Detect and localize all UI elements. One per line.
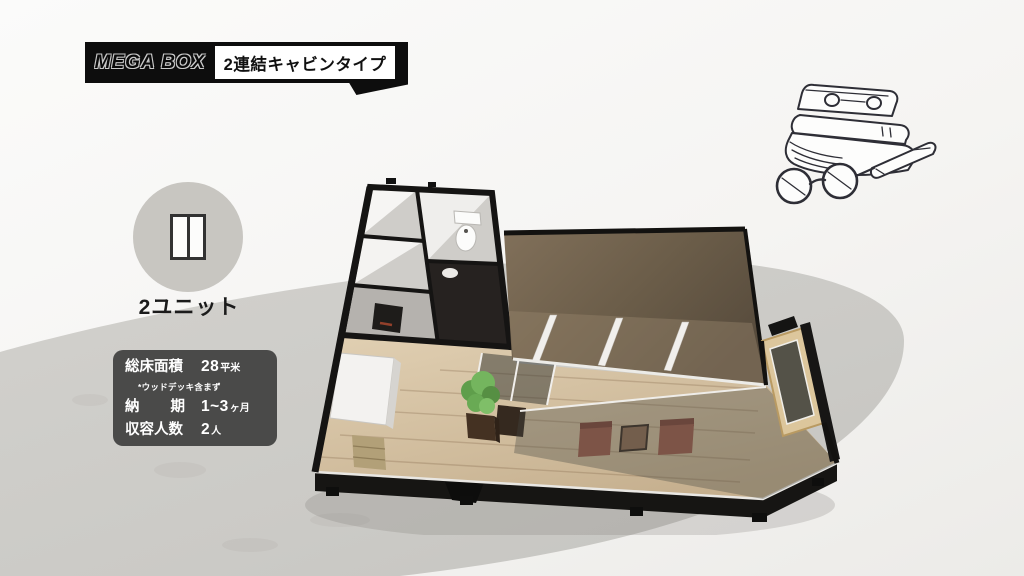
floor-area-unit: 平米 [220, 364, 240, 375]
title-ribbon: MEGA BOX 2連結キャビンタイプ [85, 42, 408, 83]
delivery-unit: ヶ月 [230, 404, 250, 415]
spec-row-capacity: 収容人数 2 人 [125, 422, 265, 438]
capacity-unit: 人 [211, 427, 221, 438]
floorplan-3d-render [300, 165, 860, 535]
cabin-type-tag: 2連結キャビンタイプ [215, 46, 395, 79]
floor-area-value: 28 [201, 359, 219, 375]
spec-row-floor-area: 総床面積 28 平米 [125, 359, 265, 375]
brand-logo: MEGA BOX [85, 42, 215, 83]
unit2-roof [504, 229, 766, 385]
unit-count-label: 2ユニット [116, 291, 262, 321]
delivery-label: 納 期 [125, 400, 185, 415]
spec-row-delivery: 納 期 1~3 ヶ月 [125, 399, 265, 415]
floor-area-label: 総床面積 [125, 360, 185, 375]
books-glasses-pen-sketch-icon [762, 38, 967, 210]
unit-pane-right [187, 214, 207, 260]
page: MEGA BOX 2連結キャビンタイプ 2ユニット 総床面積 28 平米 *ウッ… [0, 0, 1024, 576]
capacity-label: 収容人数 [125, 423, 185, 438]
delivery-label-left: 納 [125, 400, 140, 415]
delivery-label-right: 期 [171, 400, 186, 415]
spec-note: *ウッドデッキ含まず [138, 381, 265, 393]
spec-panel: 総床面積 28 平米 *ウッドデッキ含まず 納 期 1~3 ヶ月 収容人数 2 … [113, 350, 277, 446]
unit-count-badge [133, 182, 243, 292]
capacity-value: 2 [201, 422, 210, 438]
delivery-value: 1~3 [201, 399, 229, 415]
two-connected-units-icon [170, 214, 206, 260]
